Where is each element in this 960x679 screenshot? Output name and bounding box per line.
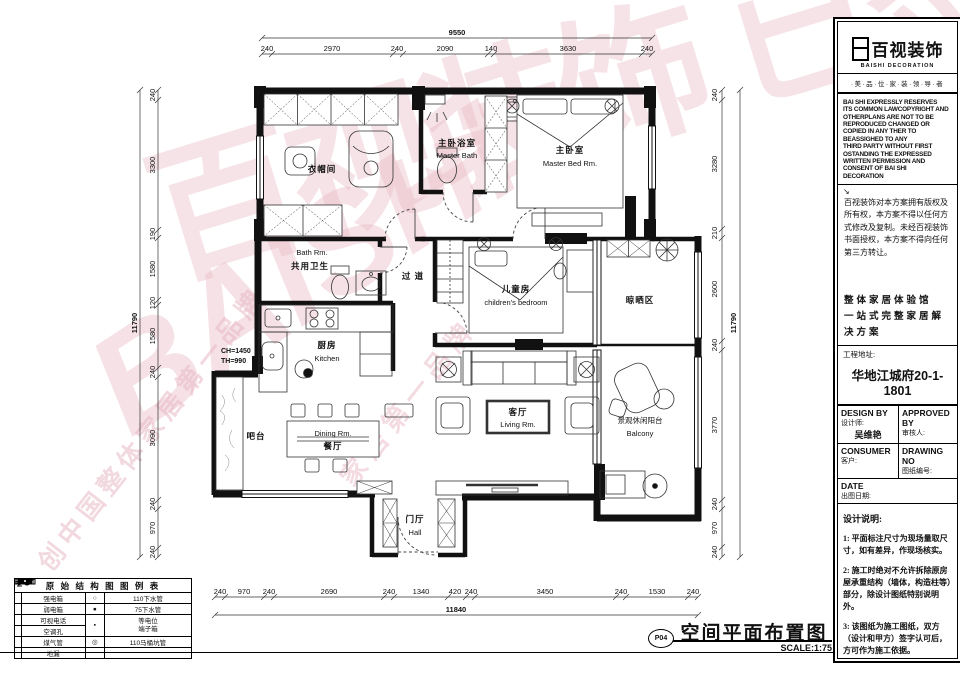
dining-table bbox=[287, 421, 379, 457]
room-label-bath-en: Bath Rm. bbox=[296, 248, 327, 257]
drain-75-icon: ● bbox=[85, 604, 104, 615]
svg-text:240: 240 bbox=[710, 498, 719, 511]
room-label-kitchen-en: Kitchen bbox=[314, 354, 339, 363]
drawing-no-label: DRAWING NO bbox=[902, 446, 954, 466]
copyright-english: BAI SHI EXPRESSLY RESERVES ITS COMMON LA… bbox=[838, 94, 957, 184]
svg-text:240: 240 bbox=[148, 546, 157, 559]
side-table-left bbox=[436, 357, 461, 382]
legend-label: 110马桶坑管 bbox=[104, 637, 191, 648]
toilet-pit-icon: ◎ bbox=[85, 637, 104, 648]
consumer-label: CONSUMER bbox=[841, 446, 895, 456]
room-label-hall-en: Hall bbox=[409, 528, 422, 537]
svg-text:3280: 3280 bbox=[710, 156, 719, 173]
weak-power-box-icon bbox=[15, 604, 22, 615]
room-label-kitchen-cn: 厨房 bbox=[317, 340, 336, 350]
shoe-cabinet bbox=[357, 481, 392, 494]
date-label: DATE bbox=[841, 481, 954, 491]
approved-by-label: APPROVED BY bbox=[902, 408, 954, 428]
svg-text:3630: 3630 bbox=[560, 44, 577, 53]
room-label-corridor: 过 道 bbox=[402, 271, 424, 281]
svg-text:970: 970 bbox=[710, 522, 719, 535]
svg-text:240: 240 bbox=[615, 587, 628, 596]
toilet-shared bbox=[331, 266, 349, 299]
legend-label: 弱电箱 bbox=[21, 604, 85, 615]
legend-empty bbox=[104, 648, 191, 659]
svg-text:240: 240 bbox=[710, 546, 719, 559]
room-label-living-cn: 客厅 bbox=[507, 407, 527, 417]
legend-label: 煤气管 bbox=[21, 637, 85, 648]
designer-label: 设计师: bbox=[841, 418, 895, 428]
floor-drain-icon bbox=[15, 648, 22, 659]
room-label-kids-cn: 儿童房 bbox=[501, 284, 531, 294]
washer-cabinet bbox=[607, 240, 650, 257]
svg-text:240: 240 bbox=[148, 498, 157, 511]
design-notes: 设计说明: 1: 平面标注尺寸为现场量取尺寸，如有差异，作现场核实。 2: 施工… bbox=[838, 504, 957, 659]
svg-text:240: 240 bbox=[263, 587, 276, 596]
room-label-bar: 吧台 bbox=[246, 431, 265, 441]
svg-text:210: 210 bbox=[710, 227, 719, 240]
svg-text:240: 240 bbox=[710, 339, 719, 352]
svg-text:190: 190 bbox=[148, 228, 157, 241]
legend-label: 75下水管 bbox=[104, 604, 191, 615]
room-label-master-bath-en: Master Bath bbox=[437, 151, 477, 160]
svg-text:240: 240 bbox=[148, 89, 157, 102]
plant bbox=[656, 239, 678, 261]
gas-pipe-icon bbox=[15, 637, 22, 648]
svg-text:2970: 2970 bbox=[324, 44, 341, 53]
svg-text:3770: 3770 bbox=[710, 417, 719, 434]
svg-text:1530: 1530 bbox=[649, 587, 666, 596]
project-name: 华地江城府20-1-1801 bbox=[843, 360, 952, 402]
strong-power-box-icon bbox=[15, 593, 22, 604]
baishi-logo-icon bbox=[852, 37, 869, 61]
vent-fan bbox=[425, 95, 447, 122]
room-label-bath-cn: 共用卫生 bbox=[291, 261, 329, 271]
room-label-hall-cn: 门厅 bbox=[405, 514, 424, 524]
legend-label: 空调孔 bbox=[21, 626, 85, 637]
date-cn-label: 出图日期: bbox=[841, 491, 954, 501]
company-tagline: ·美·品·位·家·装·领·导·者 bbox=[838, 74, 957, 92]
legend-empty bbox=[85, 648, 104, 659]
title-block: 百视装饰 BAISHI DECORATION ·美·品·位·家·装·领·导·者 … bbox=[833, 17, 960, 663]
svg-text:11790: 11790 bbox=[130, 313, 139, 333]
svg-text:240: 240 bbox=[641, 44, 654, 53]
svg-text:1340: 1340 bbox=[413, 587, 430, 596]
sheet-frame-line bbox=[0, 652, 833, 653]
room-label-master-bed-cn: 主卧室 bbox=[556, 145, 585, 155]
sheet-number-badge: P04 bbox=[648, 629, 674, 648]
logo-text-cn: 百视装饰 bbox=[872, 36, 944, 61]
svg-text:240: 240 bbox=[214, 587, 227, 596]
closet-kids bbox=[437, 240, 463, 303]
slogan-2: 一站式完整家居解决方案 bbox=[844, 309, 951, 341]
armchair-left bbox=[436, 397, 470, 434]
legend-label: 等电位 端子箱 bbox=[104, 615, 191, 637]
arrow-icon: ↘ bbox=[838, 185, 957, 196]
wardrobe-bottom bbox=[264, 205, 342, 236]
designer-name: 吴维艳 bbox=[841, 428, 895, 441]
annotation-ch: CH=1450 bbox=[221, 348, 251, 355]
fridge bbox=[360, 332, 392, 376]
room-label-balcony-cn: 景观休闲阳台 bbox=[618, 415, 663, 425]
floor-plan: 9550 240 2970 240 2090 140 3630 240 240 … bbox=[0, 0, 833, 652]
approver-label: 审核人: bbox=[902, 428, 954, 438]
room-label-kids-en: children's bedroom bbox=[484, 298, 547, 307]
svg-text:970: 970 bbox=[148, 522, 157, 535]
room-label-cloakroom: 衣帽间 bbox=[308, 164, 337, 174]
sofa bbox=[463, 351, 576, 385]
svg-text:420: 420 bbox=[449, 587, 462, 596]
tv-cabinet bbox=[436, 481, 568, 495]
note-1: 1: 平面标注尺寸为现场量取尺寸，如有差异，作现场核实。 bbox=[843, 533, 952, 557]
svg-text:240: 240 bbox=[261, 44, 274, 53]
company-slogans: 整体家居体验馆 一站式完整家居解决方案 bbox=[838, 289, 957, 345]
svg-text:3090: 3090 bbox=[148, 430, 157, 447]
legend-label: 可视电话 bbox=[21, 615, 85, 626]
legend-label: 强电箱 bbox=[21, 593, 85, 604]
svg-text:1580: 1580 bbox=[148, 328, 157, 345]
room-label-drying: 晾晒区 bbox=[626, 295, 655, 305]
svg-text:240: 240 bbox=[391, 44, 404, 53]
bar-counter bbox=[216, 377, 243, 490]
note-2: 2: 施工时绝对不允许拆除原房屋承重结构（墙体，构造柱等）部分，除设计图纸特别说… bbox=[843, 565, 952, 613]
notes-title: 设计说明: bbox=[843, 512, 952, 525]
svg-text:240: 240 bbox=[148, 366, 157, 379]
kitchen-stool bbox=[295, 360, 313, 378]
title-underline bbox=[655, 640, 832, 642]
room-label-master-bath-cn: 主卧浴室 bbox=[438, 138, 476, 148]
logo-text-en: BAISHI DECORATION bbox=[842, 63, 953, 69]
ac-hole-icon bbox=[15, 626, 22, 637]
client-label: 客户: bbox=[841, 456, 895, 466]
svg-text:970: 970 bbox=[238, 587, 251, 596]
legend-label: 110下水管 bbox=[104, 593, 191, 604]
svg-text:240: 240 bbox=[687, 587, 700, 596]
svg-text:3450: 3450 bbox=[537, 587, 554, 596]
wardrobe-column-master bbox=[485, 96, 507, 192]
room-label-master-bed-en: Master Bed Rm. bbox=[543, 159, 597, 168]
video-phone-icon bbox=[15, 615, 22, 626]
slogan-1: 整体家居体验馆 bbox=[844, 293, 951, 309]
room-label-living-en: Living Rm. bbox=[500, 420, 535, 429]
title-block-grid: DESIGN BY 设计师: 吴维艳 APPROVED BY 审核人: CONS… bbox=[838, 404, 957, 504]
svg-text:120: 120 bbox=[148, 297, 157, 310]
svg-text:240: 240 bbox=[465, 587, 478, 596]
laundry-sink bbox=[600, 471, 667, 498]
equipotential-box-icon: ▪ bbox=[85, 615, 104, 637]
drain-110-icon: ○ bbox=[85, 593, 104, 604]
svg-text:240: 240 bbox=[383, 587, 396, 596]
company-logo: 百视装饰 BAISHI DECORATION bbox=[838, 22, 957, 73]
svg-text:1580: 1580 bbox=[148, 261, 157, 278]
legend-title: 原 始 结 构 图 图 例 表 bbox=[15, 579, 192, 593]
svg-text:11790: 11790 bbox=[729, 313, 738, 333]
svg-text:240: 240 bbox=[710, 89, 719, 102]
lounge-chair bbox=[349, 131, 393, 187]
svg-text:2690: 2690 bbox=[321, 587, 338, 596]
dimension-labels: 9550 240 2970 240 2090 140 3630 240 240 … bbox=[130, 28, 738, 614]
svg-text:3300: 3300 bbox=[148, 157, 157, 174]
drawing-no-cn-label: 图纸编号: bbox=[902, 466, 954, 476]
copyright-chinese: 百视装饰对本方案拥有版权及所有权，本方案不得以任何方式修改及复制。未经百视装饰书… bbox=[838, 196, 957, 263]
legend-table: 原 始 结 构 图 图 例 表 强电箱 ○ 110下水管 弱电箱 ● 75下水管… bbox=[14, 578, 192, 659]
annotation-th: TH=990 bbox=[221, 358, 246, 365]
room-label-dining-cn: 餐厅 bbox=[322, 441, 342, 451]
svg-text:11840: 11840 bbox=[446, 605, 466, 614]
drawing-sheet: 百视装饰 已签约 BAISHI 创中国整体家居第一品牌 家居第一品牌 9550 … bbox=[0, 0, 960, 679]
legend-label: 地漏 bbox=[21, 648, 85, 659]
bed-bench bbox=[532, 213, 602, 226]
furniture bbox=[216, 94, 678, 547]
room-label-balcony-en: Balcony bbox=[627, 429, 654, 438]
svg-text:140: 140 bbox=[485, 44, 498, 53]
lounge-set bbox=[608, 360, 674, 419]
design-by-label: DESIGN BY bbox=[841, 408, 895, 418]
note-3: 3: 该图纸为施工图纸，双方（设计和甲方）签字认可后，方可作为施工依据。 bbox=[843, 621, 952, 657]
project-address-label: 工程地址: bbox=[843, 349, 952, 360]
wardrobe-top bbox=[264, 94, 398, 125]
svg-text:2600: 2600 bbox=[710, 281, 719, 298]
svg-text:2090: 2090 bbox=[437, 44, 454, 53]
room-label-dining-en: Dining Rm. bbox=[314, 429, 351, 438]
svg-text:9550: 9550 bbox=[449, 28, 466, 37]
